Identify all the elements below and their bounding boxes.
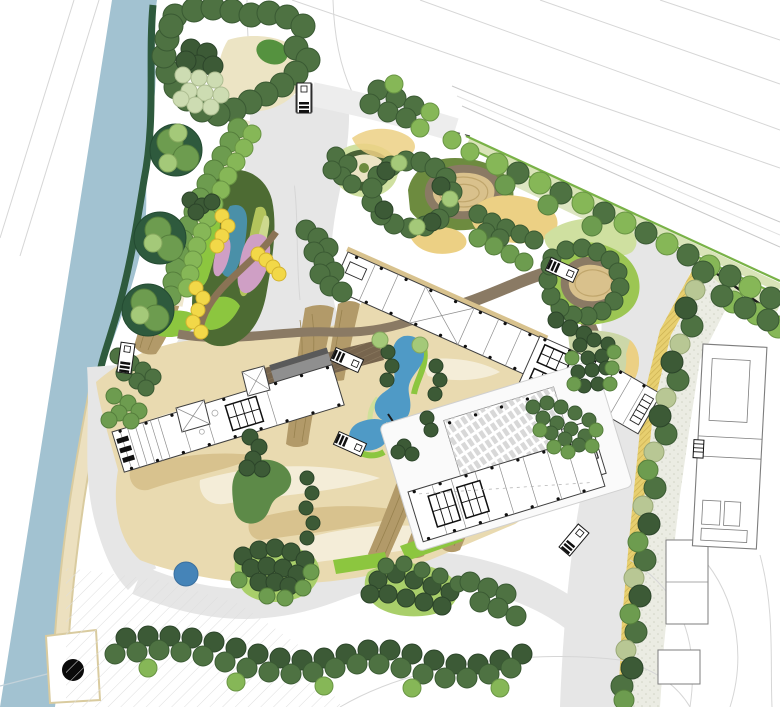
- tree: [565, 351, 579, 365]
- tree: [540, 396, 554, 410]
- tree: [239, 460, 255, 476]
- tree: [295, 580, 311, 596]
- tree: [644, 442, 664, 462]
- tree: [424, 423, 438, 437]
- tree: [495, 175, 515, 195]
- tree: [470, 592, 490, 612]
- tree: [175, 67, 191, 83]
- tree: [159, 154, 177, 172]
- tree: [272, 267, 286, 281]
- tree: [378, 102, 398, 122]
- tree: [515, 253, 533, 271]
- tree: [305, 486, 319, 500]
- tree: [501, 658, 521, 678]
- tree: [169, 124, 187, 142]
- tree: [231, 572, 247, 588]
- tree: [457, 668, 477, 688]
- tree: [259, 588, 275, 604]
- tree: [391, 445, 405, 459]
- tree: [603, 377, 617, 391]
- tree: [582, 216, 602, 236]
- landscape-master-plan: [0, 0, 780, 707]
- tree: [589, 423, 603, 437]
- tree: [369, 654, 389, 674]
- tree: [433, 373, 447, 387]
- tree: [409, 219, 425, 235]
- tree: [485, 237, 503, 255]
- tree: [378, 558, 394, 574]
- tree: [432, 568, 448, 584]
- tree: [123, 413, 139, 429]
- tree: [171, 642, 191, 662]
- tree: [405, 447, 419, 461]
- tree: [661, 351, 683, 373]
- tree: [300, 471, 314, 485]
- tree: [533, 423, 547, 437]
- tree: [191, 70, 207, 86]
- tree: [194, 325, 208, 339]
- tree: [429, 359, 443, 373]
- tree: [299, 501, 313, 515]
- tree: [250, 541, 268, 559]
- kiosk: [297, 83, 311, 113]
- tree: [101, 412, 117, 428]
- tree: [159, 14, 183, 38]
- tree: [144, 234, 162, 252]
- tree: [379, 585, 397, 603]
- tree: [585, 363, 599, 377]
- tree: [635, 222, 657, 244]
- tree: [734, 297, 756, 319]
- tree: [415, 593, 433, 611]
- tree: [391, 658, 411, 678]
- tree: [567, 377, 581, 391]
- tree: [300, 531, 314, 545]
- tree: [677, 244, 699, 266]
- tree: [711, 285, 733, 307]
- stair-core: [693, 440, 704, 458]
- tree: [488, 598, 508, 618]
- tree: [105, 644, 125, 664]
- tree: [428, 387, 442, 401]
- tree: [138, 380, 154, 396]
- tree: [372, 332, 388, 348]
- tree: [207, 72, 223, 88]
- tree: [127, 642, 147, 662]
- tree: [362, 178, 382, 198]
- tree: [303, 564, 319, 580]
- tree: [227, 673, 245, 691]
- tree: [638, 460, 658, 480]
- tree: [529, 172, 551, 194]
- tree: [397, 589, 415, 607]
- tree: [614, 212, 636, 234]
- tree: [106, 388, 122, 404]
- tree: [391, 155, 407, 171]
- tree: [139, 659, 157, 677]
- tree: [173, 91, 189, 107]
- tree: [266, 539, 284, 557]
- site-plan-page: [0, 0, 780, 707]
- tree: [760, 287, 780, 309]
- tree: [506, 606, 526, 626]
- tree: [621, 657, 643, 679]
- tree: [375, 201, 393, 219]
- tree: [403, 679, 421, 697]
- tree: [675, 297, 697, 319]
- tree: [215, 652, 235, 672]
- tree: [526, 400, 540, 414]
- tree: [414, 562, 430, 578]
- tree: [210, 239, 224, 253]
- circle-pond: [174, 562, 198, 586]
- tree: [254, 461, 270, 477]
- tree: [585, 439, 599, 453]
- tree: [538, 195, 558, 215]
- tree: [347, 654, 367, 674]
- tree: [573, 338, 587, 352]
- tree: [193, 646, 213, 666]
- tree: [188, 204, 204, 220]
- tree: [442, 191, 458, 207]
- tree: [525, 231, 543, 249]
- tree: [343, 175, 361, 193]
- tree: [385, 75, 403, 93]
- tree: [628, 532, 648, 552]
- tree: [548, 312, 564, 328]
- tree: [719, 265, 741, 287]
- tree: [173, 145, 199, 171]
- tree: [629, 585, 651, 607]
- tree: [332, 282, 352, 302]
- tree: [360, 94, 380, 114]
- tree: [460, 572, 480, 592]
- tree: [433, 597, 451, 615]
- tree: [554, 400, 568, 414]
- tree: [486, 153, 508, 175]
- tree: [542, 287, 560, 305]
- tree: [649, 405, 671, 427]
- tree: [435, 668, 455, 688]
- tree: [396, 556, 412, 572]
- tree: [131, 306, 149, 324]
- tree: [638, 513, 660, 535]
- tree: [739, 276, 761, 298]
- tree: [315, 677, 333, 695]
- tree: [461, 143, 479, 161]
- tree: [291, 14, 315, 38]
- tree: [605, 361, 619, 375]
- tree: [469, 229, 487, 247]
- tree: [421, 103, 439, 121]
- tree: [259, 662, 279, 682]
- tree: [204, 194, 220, 210]
- tree: [323, 161, 341, 179]
- tree: [547, 440, 561, 454]
- tree: [385, 359, 399, 373]
- tree: [656, 233, 678, 255]
- tree: [411, 119, 429, 137]
- tree: [561, 445, 575, 459]
- tree: [361, 585, 379, 603]
- tree: [614, 690, 634, 707]
- tree: [325, 658, 345, 678]
- tree: [757, 309, 779, 331]
- tree: [203, 99, 219, 115]
- tree: [572, 192, 594, 214]
- tree: [568, 406, 582, 420]
- tree: [607, 345, 621, 359]
- tree: [281, 664, 301, 684]
- tree: [620, 604, 640, 624]
- tree: [557, 241, 575, 259]
- tree: [443, 131, 461, 149]
- tree: [412, 337, 428, 353]
- tree: [587, 333, 601, 347]
- tree: [258, 557, 276, 575]
- tree: [277, 590, 293, 606]
- tree: [149, 640, 169, 660]
- tree: [491, 679, 509, 697]
- tree: [423, 213, 441, 231]
- tree: [380, 373, 394, 387]
- tree: [306, 516, 320, 530]
